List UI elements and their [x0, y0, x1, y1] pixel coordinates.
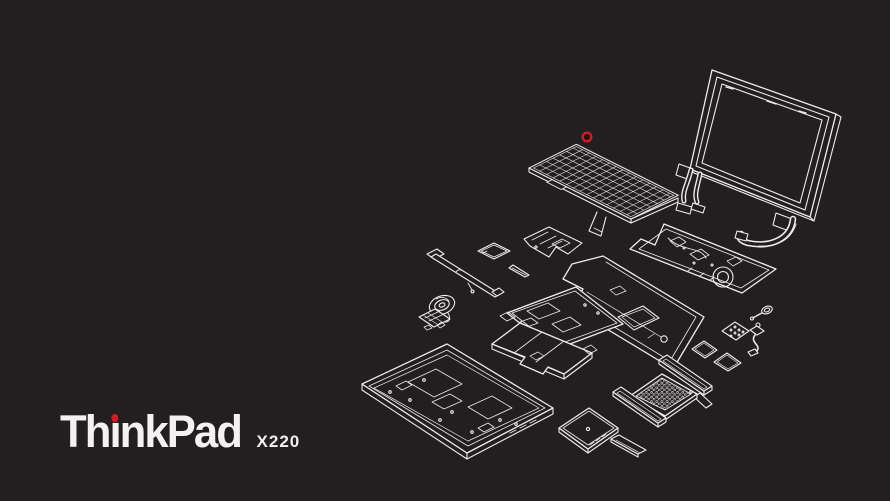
hard-drive-part	[559, 408, 618, 453]
wallpaper: ThınkPad X220	[0, 0, 890, 501]
expansion-card-2-part	[714, 353, 741, 371]
expansion-card-1-part	[692, 341, 717, 358]
brand-letter-i: ı	[109, 407, 119, 457]
mounting-bracket-part	[509, 265, 529, 277]
wireless-card-part	[478, 243, 510, 259]
brand-prefix: Th	[60, 406, 109, 457]
motherboard-part	[630, 224, 776, 293]
perforated-card-part	[722, 322, 749, 340]
brand-wordmark: ThınkPad	[60, 407, 241, 457]
keyboard-part	[524, 144, 679, 236]
brand-suffix: nkPad	[120, 406, 241, 457]
latch-lever-part	[751, 305, 774, 320]
drive-bay-cover-part	[611, 435, 646, 457]
speaker-assembly-part	[419, 292, 457, 330]
thinkpad-logo: ThınkPad X220	[60, 407, 300, 457]
dc-jack-cable-part	[748, 323, 764, 356]
trackpoint-cap-part	[583, 133, 592, 142]
model-label: X220	[257, 432, 301, 452]
card-reader-board-part	[524, 227, 582, 257]
red-dot-icon	[111, 414, 118, 422]
